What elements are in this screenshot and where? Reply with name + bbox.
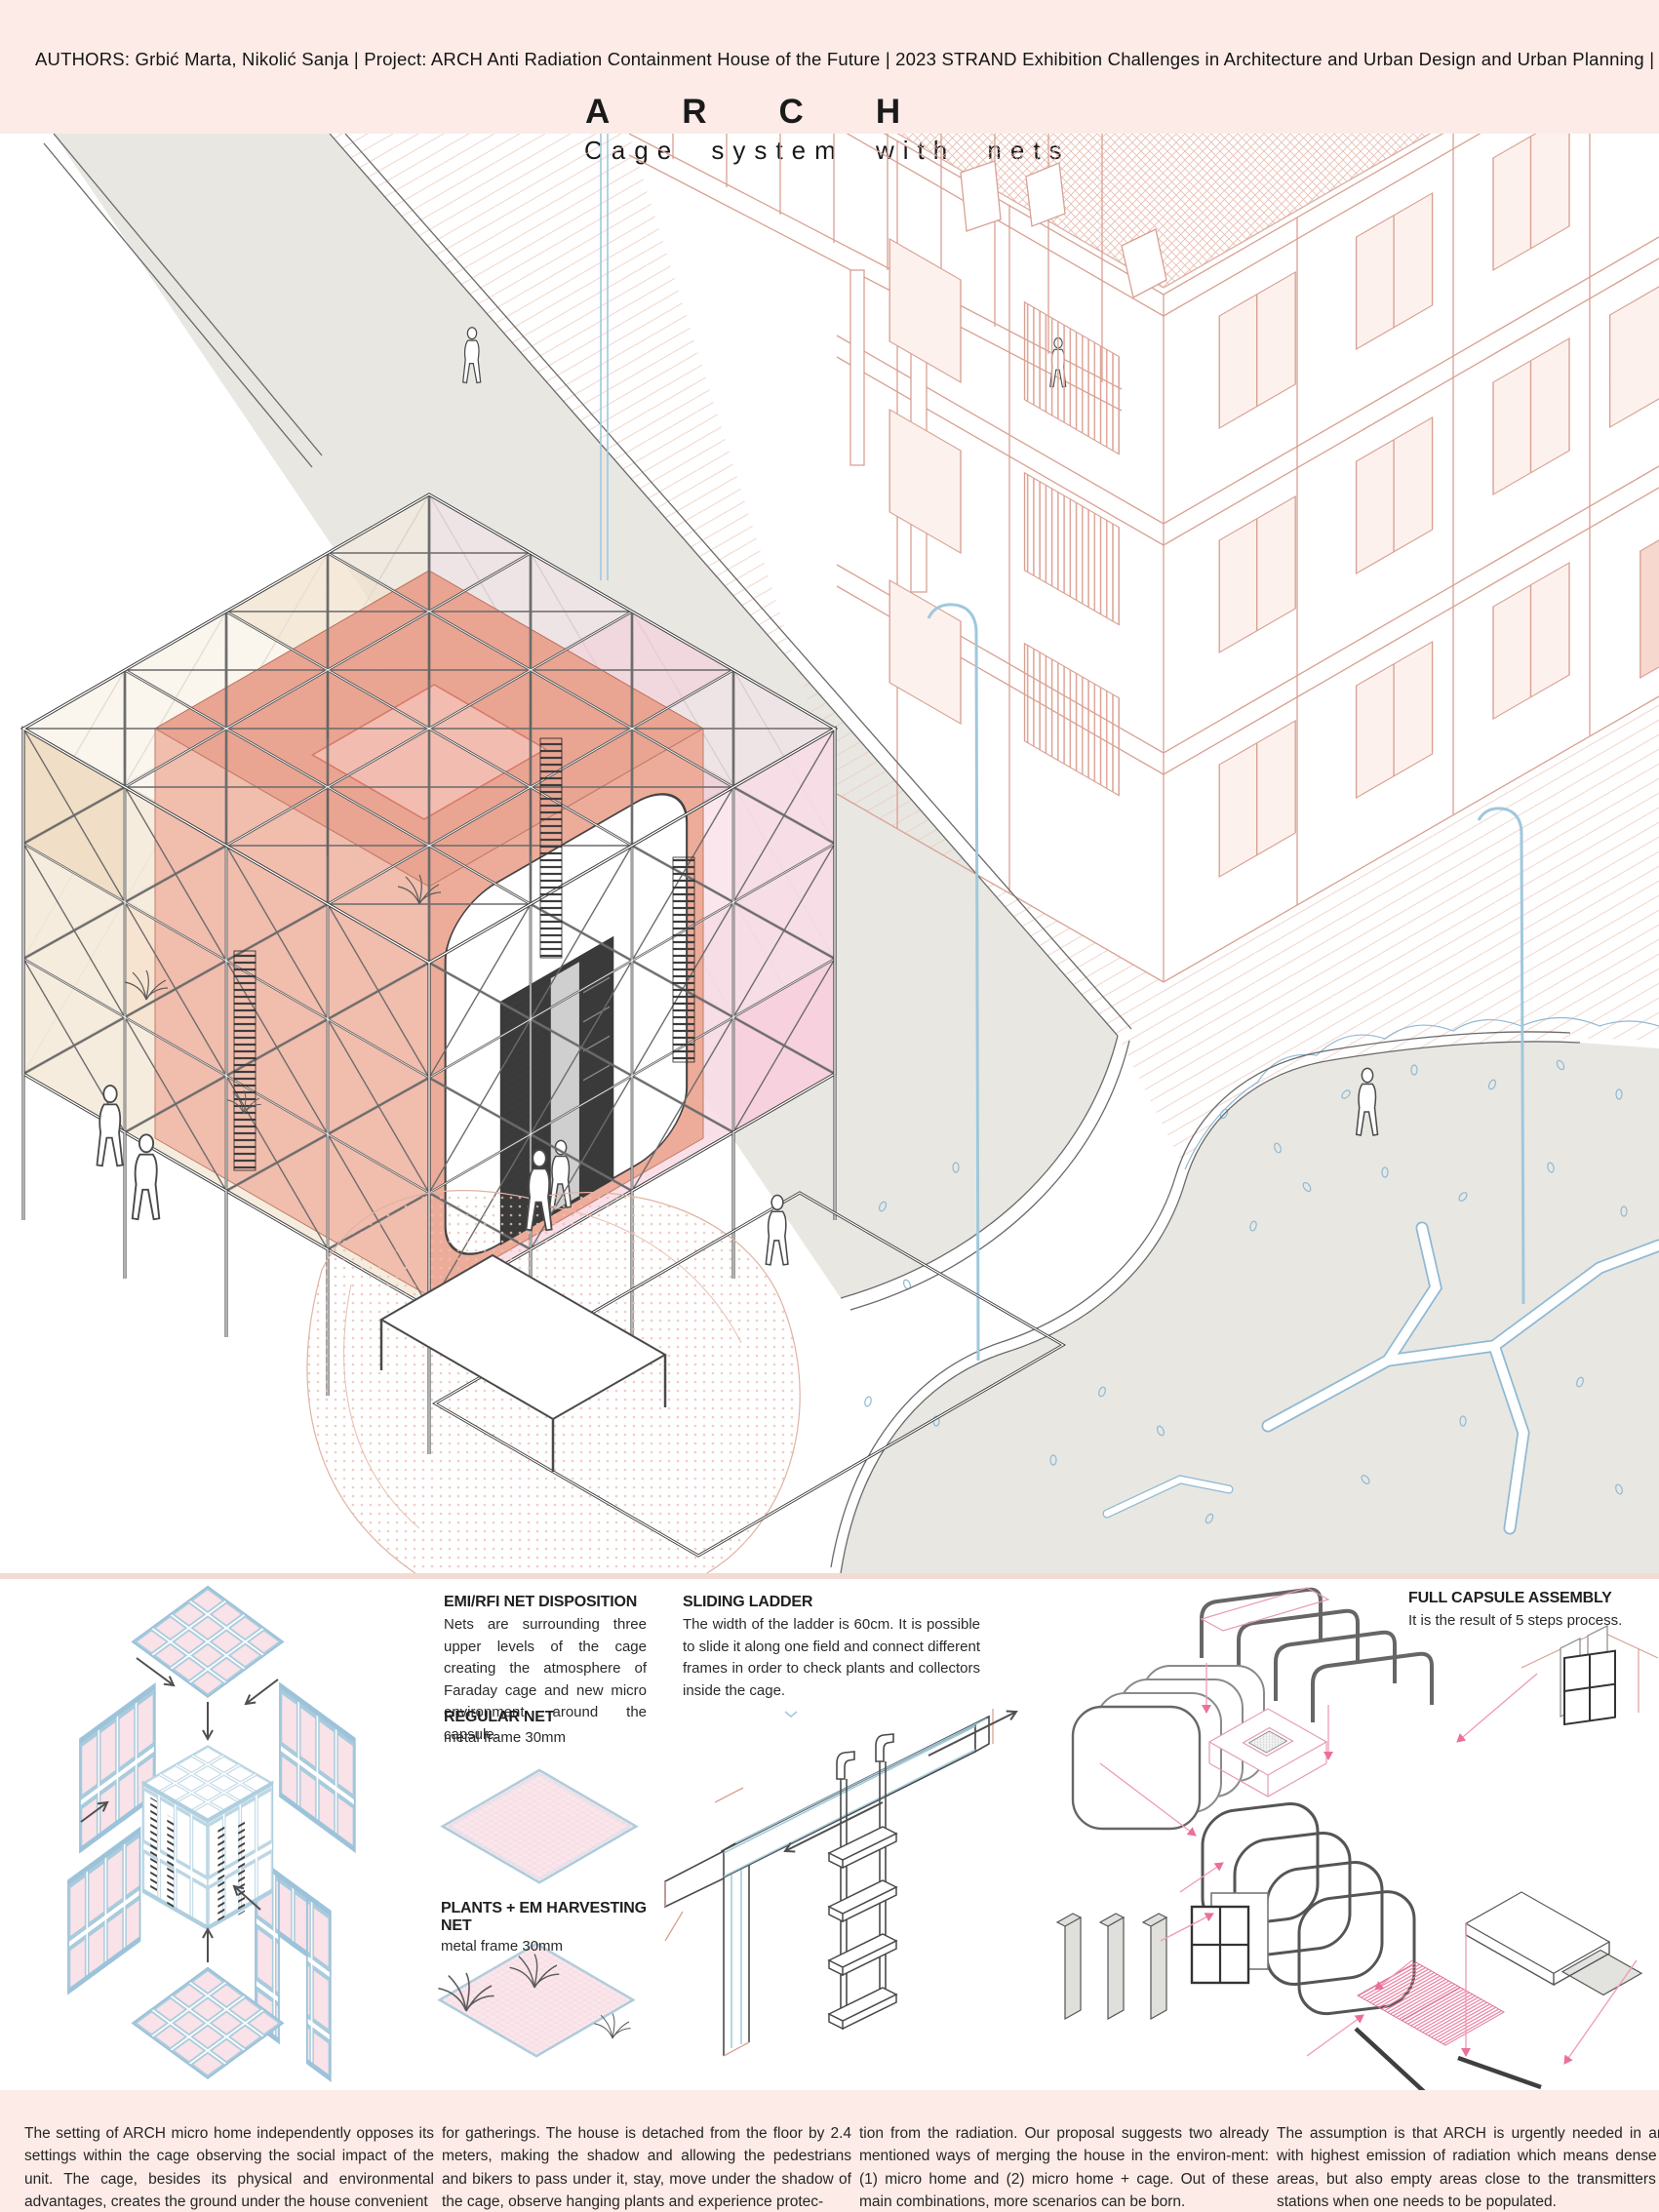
sliding-ladder-body: The width of the ladder is 60cm. It is p…	[683, 1614, 980, 1702]
sliding-ladder-caption: SLIDING LADDER The width of the ladder i…	[683, 1594, 980, 1702]
building-windows-left	[889, 239, 961, 724]
footer-paragraph-2: for gatherings. The house is detached fr…	[442, 2122, 851, 2212]
authors-line: AUTHORS: Grbić Marta, Nikolić Sanja | Pr…	[35, 49, 1635, 70]
full-capsule-body: It is the result of 5 steps process.	[1408, 1610, 1659, 1633]
full-capsule-caption: FULL CAPSULE ASSEMBLY It is the result o…	[1408, 1590, 1659, 1633]
plants-net-subtitle: metal frame 30mm	[441, 1938, 675, 1955]
emi-net-title: EMI/RFI NET DISPOSITION	[444, 1594, 647, 1611]
regular-net-caption: REGULAR NET metal frame 30mm	[444, 1709, 647, 1746]
footer-paragraph-4: The assumption is that ARCH is urgently …	[1277, 2122, 1659, 2212]
plants-net-drawing	[438, 1944, 633, 2056]
assembly-slabs-left	[1057, 1893, 1268, 2019]
assembly-panels-right	[1521, 1626, 1658, 1724]
sliding-ladder-title: SLIDING LADDER	[683, 1594, 980, 1611]
regular-net-title: REGULAR NET	[444, 1709, 647, 1726]
footer-paragraph-1: The setting of ARCH micro home independe…	[24, 2122, 434, 2212]
net-disposition-diagram	[68, 1587, 355, 2078]
sliding-ladder-diagram	[665, 1709, 1016, 2056]
net-cube	[142, 1746, 272, 1933]
page-title: ARCH	[585, 95, 972, 129]
diagram-section: EMI/RFI NET DISPOSITION Nets are surroun…	[0, 1579, 1659, 2090]
main-axonometric-illustration	[0, 134, 1659, 1573]
footer-bar: The setting of ARCH micro home independe…	[0, 2090, 1659, 2212]
footer-paragraph-3: tion from the radiation. Our proposal su…	[859, 2122, 1269, 2212]
regular-net-drawing	[443, 1770, 636, 1882]
full-capsule-title: FULL CAPSULE ASSEMBLY	[1408, 1590, 1659, 1607]
plants-net-caption: PLANTS + EM HARVESTING NET metal frame 3…	[441, 1900, 675, 1955]
assembly-platform-right	[1356, 1892, 1653, 2090]
plants-net-title: PLANTS + EM HARVESTING NET	[441, 1900, 675, 1935]
poster-sheet: AUTHORS: Grbić Marta, Nikolić Sanja | Pr…	[0, 0, 1659, 2212]
capsule-assembly-diagram	[1057, 1588, 1658, 2090]
regular-net-subtitle: metal frame 30mm	[444, 1729, 647, 1746]
building-balconies	[1025, 302, 1120, 796]
